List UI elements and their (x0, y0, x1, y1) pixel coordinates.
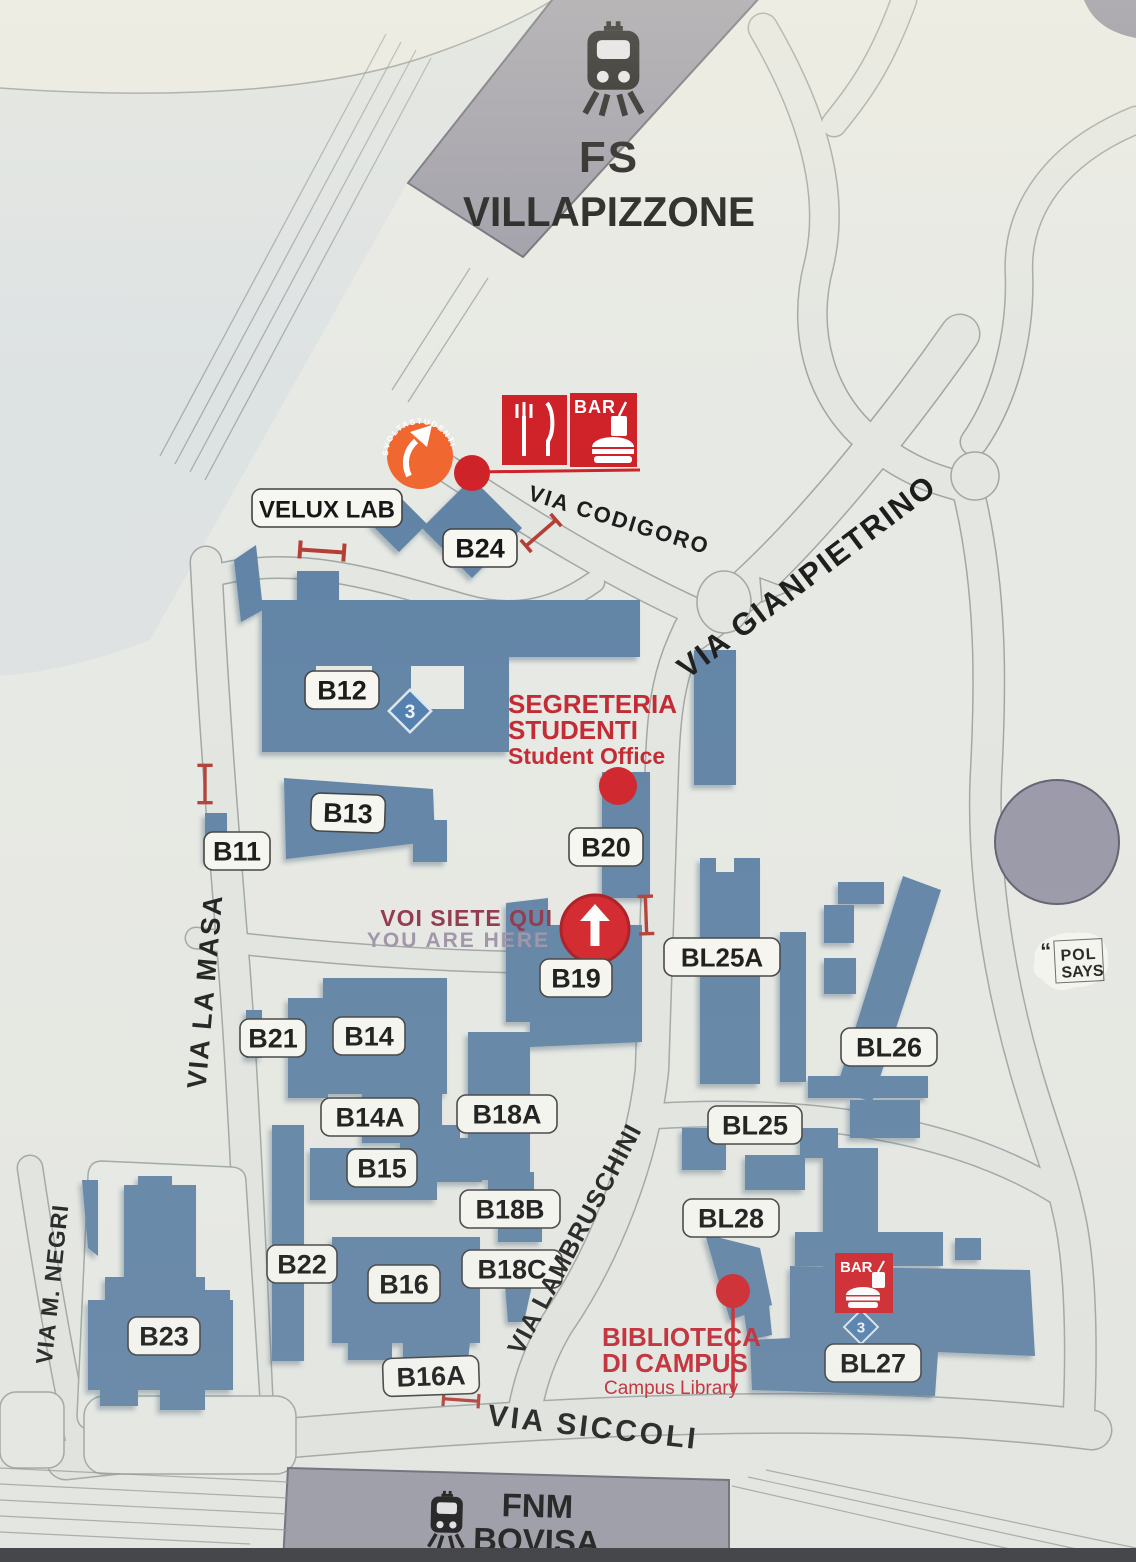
building-bl26 (838, 882, 884, 904)
building-label-b15: B15 (347, 1149, 417, 1187)
svg-text:B24: B24 (455, 534, 505, 564)
building-label-bl26: BL26 (841, 1028, 937, 1066)
segreteria-dot (599, 767, 637, 805)
burger-icon (592, 437, 634, 463)
bar-label: BAR (574, 397, 616, 417)
campus-map: 3 3 BAR SVOLTASTUDENTI (0, 0, 1136, 1562)
svg-text:B13: B13 (323, 798, 374, 830)
svg-text:BL25A: BL25A (681, 943, 764, 973)
bar-location-dot (454, 455, 490, 491)
svg-text:B14A: B14A (335, 1103, 404, 1133)
svg-text:B23: B23 (139, 1322, 189, 1352)
station-line2: VILLAPIZZONE (463, 188, 755, 235)
building-label-b20: B20 (569, 828, 643, 866)
svg-text:B16: B16 (379, 1270, 429, 1300)
building-b22 (272, 1125, 304, 1361)
burger-icon (846, 1287, 880, 1308)
building-b13-annex (413, 820, 447, 862)
building-label-velux-lab: VELUX LAB (252, 489, 402, 527)
station-line1: FS (579, 133, 639, 182)
building-label-b14a: B14A (321, 1098, 419, 1136)
building-label-b12: B12 (305, 671, 379, 709)
sticker-line1: POL (1060, 946, 1097, 965)
sticker-line2: SAYS (1061, 963, 1104, 982)
segreteria-en: Student Office (508, 743, 665, 769)
svg-text:B15: B15 (357, 1154, 407, 1184)
svg-text:B20: B20 (581, 833, 631, 863)
svg-text:BL25: BL25 (722, 1111, 788, 1141)
building-label-bl27: BL27 (825, 1344, 921, 1382)
building-label-b18a: B18A (457, 1095, 557, 1133)
svg-text:B11: B11 (213, 837, 261, 867)
photo-edge (0, 1548, 1136, 1562)
svg-text:3: 3 (857, 1320, 865, 1337)
svg-text:VELUX LAB: VELUX LAB (259, 497, 395, 524)
building-label-b18b: B18B (460, 1190, 560, 1228)
building-label-b23: B23 (128, 1317, 200, 1355)
building-label-bl25a: BL25A (664, 938, 780, 976)
building-bl26 (808, 1076, 928, 1098)
svg-text:B14: B14 (344, 1022, 394, 1052)
building-label-bl28: BL28 (683, 1199, 779, 1237)
biblioteca-line2: DI CAMPUS (602, 1348, 748, 1378)
building-label-b14: B14 (333, 1017, 405, 1055)
building-bl26 (824, 905, 854, 943)
biblioteca-en: Campus Library (604, 1378, 739, 1399)
building-b16a (348, 1337, 392, 1360)
building-label-b16a: B16A (382, 1355, 479, 1396)
svg-text:B21: B21 (248, 1024, 298, 1054)
svg-text:B22: B22 (277, 1250, 327, 1280)
building-bl26 (824, 958, 856, 994)
svg-text:B18B: B18B (475, 1195, 544, 1225)
svg-text:B19: B19 (551, 964, 601, 994)
svg-text:BL28: BL28 (698, 1204, 764, 1234)
svg-text:B16A: B16A (396, 1360, 466, 1392)
building-b12 (262, 656, 509, 752)
bar-sign-south: BAR (835, 1253, 893, 1313)
building-bl25 (745, 1155, 805, 1190)
building-label-b24: B24 (443, 529, 517, 567)
roundabout-small (951, 452, 999, 500)
svg-text:B18A: B18A (472, 1100, 541, 1130)
building-label-b21: B21 (240, 1019, 306, 1057)
you-are-here-it: VOI SIETE QUI (380, 905, 553, 931)
building-label-b22: B22 (267, 1245, 337, 1283)
building-b23 (160, 1390, 205, 1410)
bar-label: BAR (840, 1259, 873, 1276)
station-line1: FNM (501, 1486, 573, 1525)
building-bl27 (955, 1238, 981, 1260)
building-b23 (124, 1185, 196, 1277)
courtyard-bl25a-notch (716, 858, 734, 872)
building-label-bl25: BL25 (708, 1106, 802, 1144)
building-bl26 (850, 1100, 920, 1138)
biblioteca-dot (716, 1274, 750, 1308)
gasometer (995, 780, 1119, 904)
svg-text:B12: B12 (317, 676, 367, 706)
building-b12 (297, 571, 339, 602)
building-label-b19: B19 (540, 959, 612, 997)
building-b23 (100, 1390, 138, 1406)
building-label-b16: B16 (368, 1265, 440, 1303)
building-label-b13: B13 (310, 793, 385, 834)
building-bl25a (780, 932, 806, 1082)
svg-text:BL27: BL27 (840, 1349, 906, 1379)
svg-text:3: 3 (405, 702, 416, 723)
building-label-b11: B11 (204, 832, 270, 870)
svg-text:BL26: BL26 (856, 1033, 922, 1063)
svg-text:B18C: B18C (477, 1255, 546, 1285)
sticker-quote: “ (1040, 938, 1052, 964)
building-b12 (262, 600, 640, 657)
you-are-here-en: YOU ARE HERE (367, 929, 550, 952)
segreteria-line2: STUDENTI (508, 715, 638, 745)
